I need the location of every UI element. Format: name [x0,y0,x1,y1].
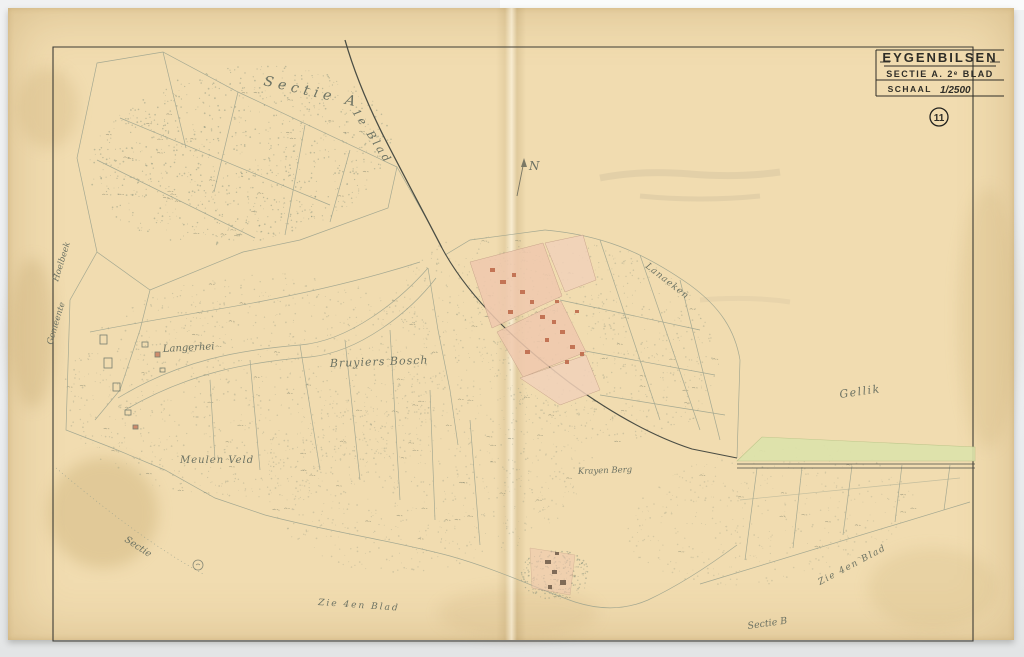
north-label: N [528,159,540,173]
sheet-number-badge: 11 [930,108,948,126]
label-sectie-a: Sectie A [262,73,362,111]
label-zie-blad-right: Zie 4en Blad [816,543,888,588]
label-hoelbeek: Hoelbeek [51,241,73,284]
label-gellik: Gellik [839,382,882,401]
label-meulen-veld: Meulen Veld [179,455,254,466]
circled-mark [193,560,203,570]
label-sectie-corner: Sectie [122,534,153,560]
map-section-line: SECTIE A. 2ᵉ BLAD [886,69,994,79]
label-gemeente: Gemeente [45,301,67,346]
label-lanaeken: Lanaeken [642,261,690,302]
meadow-strip [737,437,975,461]
ink-ghost-smudges [600,172,790,302]
farm-buildings [100,335,165,429]
village-parcels [470,235,600,595]
label-krayen-berg: Krayen Berg [577,465,633,477]
label-bruyiers-bosch: Bruyiers Bosch [329,354,429,370]
map-title: EYGENBILSEN [882,50,997,65]
map-drawing: N Sectie A 1e Blad Gemeente Hoelbeek Lan… [0,0,1024,657]
map-scale-label: SCHAAL [888,84,932,94]
label-langerhei: Langerhei [162,341,215,355]
place-labels: Sectie A 1e Blad Gemeente Hoelbeek Lange… [45,73,888,632]
north-arrow-icon [517,158,527,196]
label-zie-blad-bottom: Zie 4en Blad [317,598,400,614]
label-sectie-b: Sectie B [747,616,788,632]
scanned-cadastral-map-page: N Sectie A 1e Blad Gemeente Hoelbeek Lan… [0,0,1024,657]
title-block: EYGENBILSEN SECTIE A. 2ᵉ BLAD SCHAAL 1/2… [876,50,1004,126]
stipple-texture [65,66,914,599]
label-1e-blad: 1e Blad [349,107,394,167]
sheet-number: 11 [934,113,945,124]
sheet-boundary-line [345,40,975,468]
map-scale-value: 1/2500 [940,85,971,96]
